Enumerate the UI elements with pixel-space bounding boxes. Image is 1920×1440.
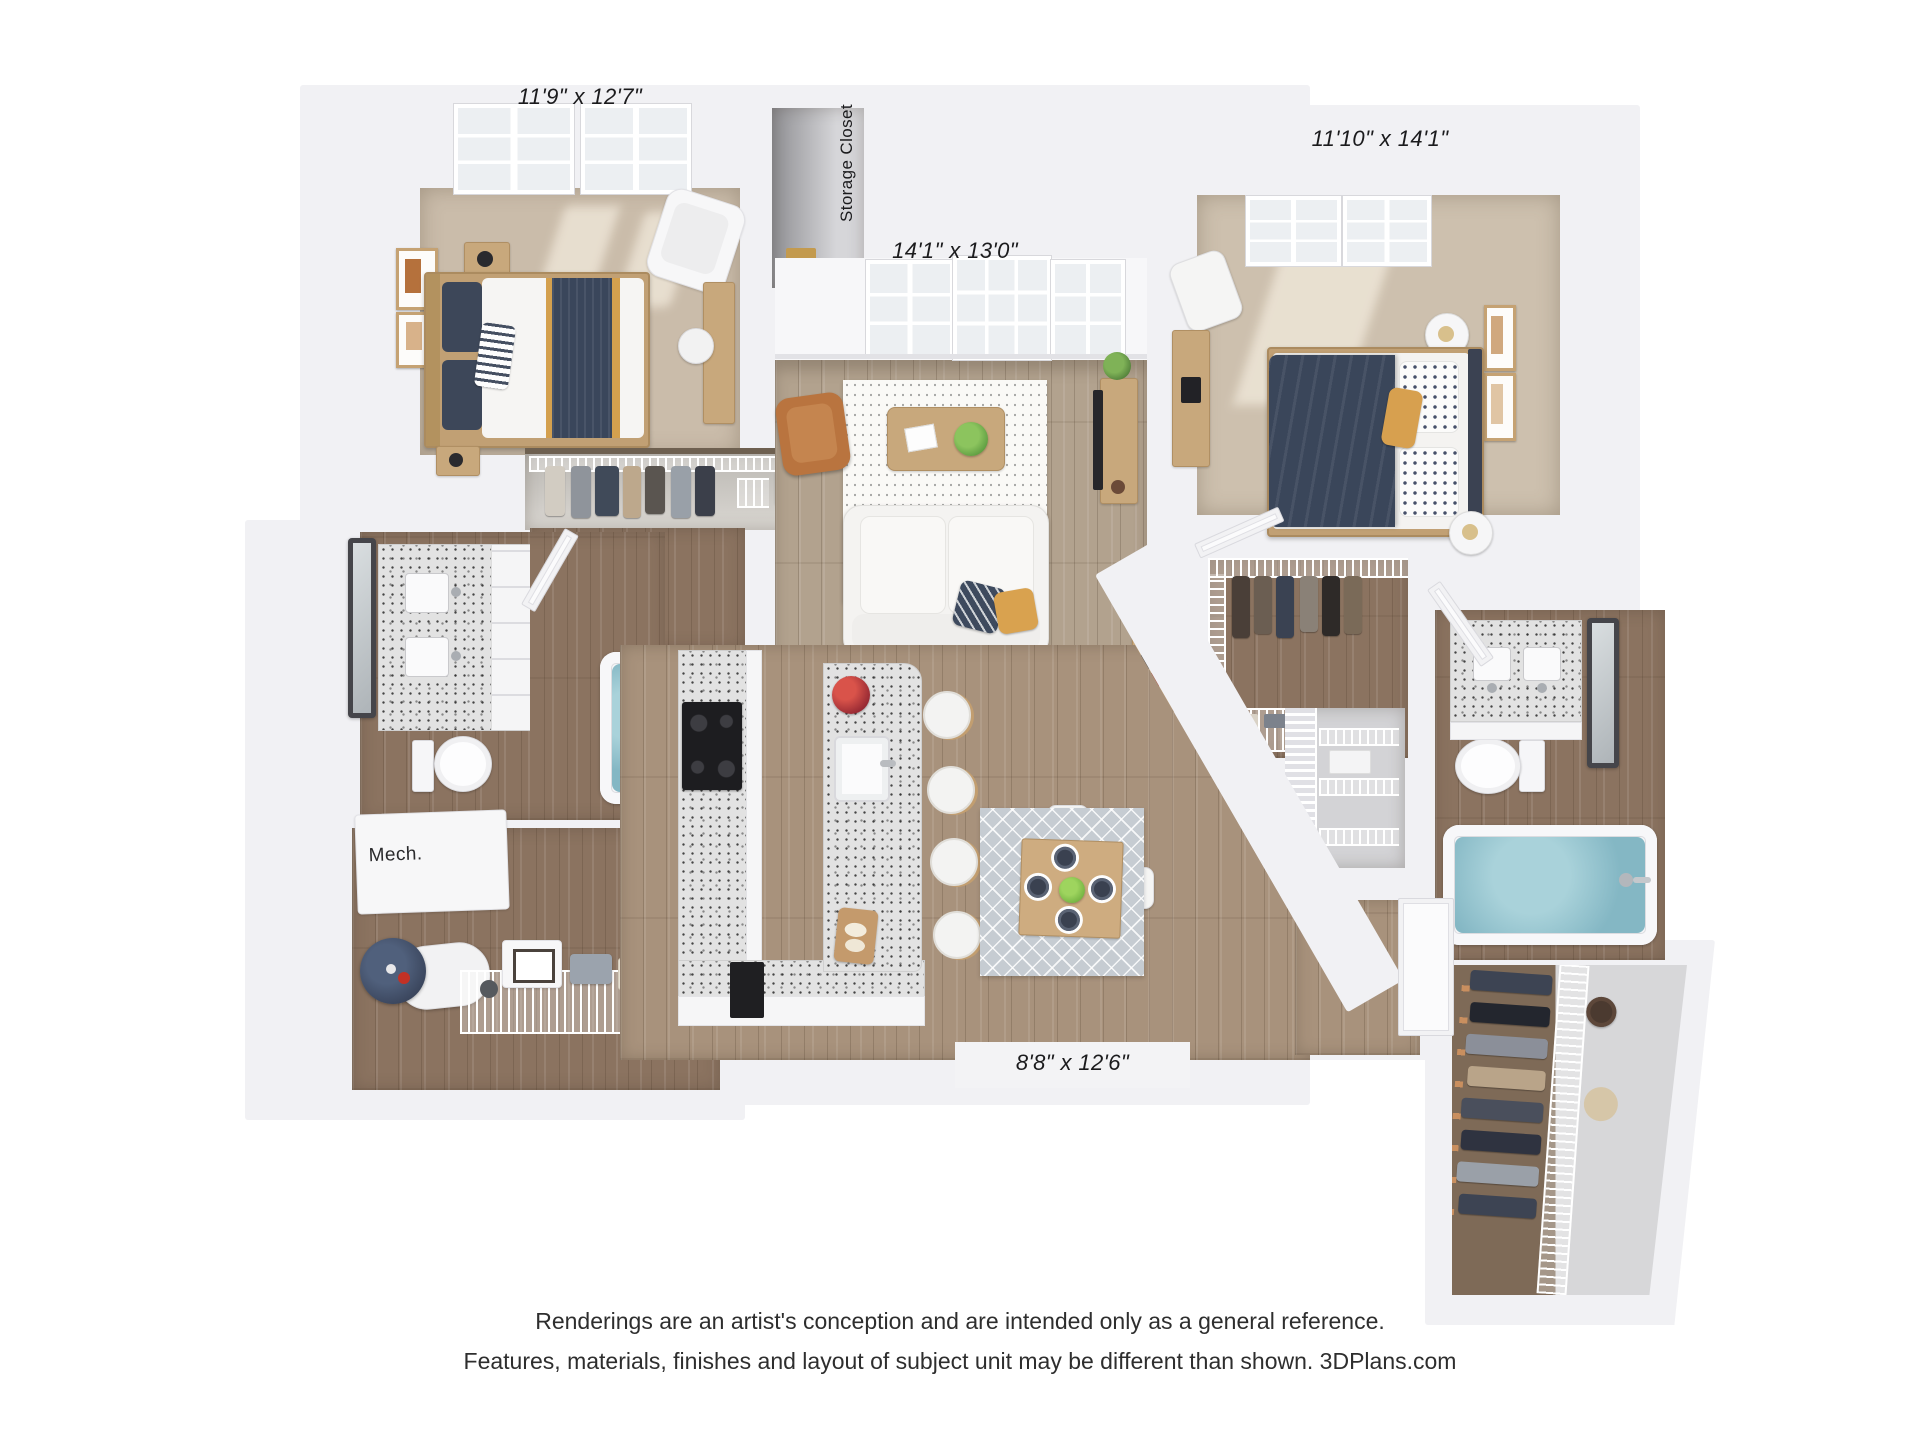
water-heater-valve <box>398 972 410 984</box>
disclaimer-line1: Renderings are an artist's conception an… <box>0 1308 1920 1335</box>
closet-wire-shelf <box>1208 558 1408 578</box>
linen-storage-box <box>1329 750 1371 774</box>
vanity-cabinet-front <box>491 545 530 730</box>
vanity-sink <box>1523 647 1561 681</box>
sofa-cushion <box>860 516 946 614</box>
vanity-faucet <box>1487 683 1497 693</box>
dining-place-setting <box>1091 878 1114 901</box>
bedroom2-window <box>1347 200 1427 262</box>
linen-wire-shelf <box>1319 778 1399 796</box>
hanging-garment <box>1232 576 1250 638</box>
hanging-garment <box>645 466 665 514</box>
sofa-pillow-mustard <box>993 587 1040 635</box>
hanging-garment <box>595 466 619 516</box>
mechanical-storage-bin <box>570 954 612 984</box>
hanging-garment <box>695 466 715 516</box>
living-french-door <box>957 260 1047 356</box>
hanging-garment <box>1465 1034 1548 1060</box>
desk-laptop <box>1181 377 1201 403</box>
kitchen-counter-left <box>678 650 748 972</box>
bedroom2-floor <box>1197 195 1560 515</box>
bedroom1-nightstand <box>436 446 480 476</box>
hanging-garment <box>1469 1002 1550 1028</box>
coffee-table-plant <box>954 422 988 456</box>
dining-place-setting <box>1054 846 1077 869</box>
hanging-garment <box>1461 1097 1544 1123</box>
hanging-garment <box>545 466 565 516</box>
mechanical-storage-box <box>502 940 562 988</box>
bathroom1-toilet-bowl <box>434 736 492 792</box>
bedroom2-bed <box>1267 347 1484 537</box>
bedroom2-wall-art <box>1484 305 1516 371</box>
kitchen-bar-stool <box>930 838 978 886</box>
disclaimer-line2: Features, materials, finishes and layout… <box>0 1348 1920 1375</box>
hanging-garment <box>1254 576 1272 634</box>
water-heater-top <box>360 938 426 1004</box>
bedroom1-lamp <box>477 251 493 267</box>
bedroom1-window <box>458 108 570 190</box>
bedroom1-dimensions-label: 11'9" x 12'7" <box>420 84 740 110</box>
hanging-garment <box>1467 1066 1546 1091</box>
linen-wire-shelf <box>1319 728 1399 746</box>
bedroom2-nightstand <box>1449 511 1493 555</box>
bathtub-water <box>1455 837 1645 933</box>
bed-pillow <box>1399 447 1459 517</box>
dining-place-setting <box>1058 909 1081 932</box>
hanging-garment <box>1322 576 1340 636</box>
coffee-table-book <box>904 424 938 453</box>
bathroom2-toilet-bowl <box>1455 738 1521 794</box>
walkin-storage-cylinder <box>1585 996 1617 1028</box>
bedroom1-desk-chair <box>678 328 714 364</box>
kitchen-bar-stool <box>933 911 981 959</box>
kitchen-fruit-bowl <box>832 676 870 714</box>
walkin-closet <box>1452 965 1687 1295</box>
living-window <box>1055 264 1121 354</box>
mechanical-label: Mech. <box>368 843 422 867</box>
living-plant <box>1103 352 1131 380</box>
bedroom2-desk <box>1172 330 1210 467</box>
bathroom1-floor <box>360 532 665 820</box>
vanity-faucet <box>1537 683 1547 693</box>
hanging-garment <box>1456 1161 1539 1187</box>
storage-closet-label: Storage Closet <box>837 88 859 238</box>
bathroom2-mirror <box>1587 618 1619 768</box>
bed-accent-stripe <box>612 278 620 438</box>
kitchen-cutting-board <box>833 907 878 965</box>
dining-centerpiece <box>1059 877 1086 904</box>
vanity-sink <box>405 573 449 613</box>
hanging-garment <box>1276 576 1294 638</box>
linen-wire-shelf <box>1319 828 1399 846</box>
walkin-hat-box <box>1583 1086 1619 1122</box>
mechanical-hvac-unit: Mech. <box>354 809 509 914</box>
dining-table <box>1018 838 1123 939</box>
bedroom1-bed <box>424 272 650 448</box>
hanging-garment <box>571 466 591 518</box>
bathroom2-floor <box>1435 610 1665 960</box>
closet-wire-basket <box>737 478 769 508</box>
bed-headboard <box>1468 349 1482 535</box>
living-vase <box>1111 480 1125 494</box>
living-dimensions-label: 14'1" x 13'0" <box>790 238 1120 264</box>
kitchen-stove-cooktop <box>682 702 742 790</box>
kitchen-oven-front <box>730 962 764 1018</box>
bedroom1-lamp <box>449 453 463 467</box>
bathroom1-vanity <box>378 544 530 731</box>
bathroom1-toilet-tank <box>412 740 434 792</box>
bathroom2-toilet-tank <box>1519 740 1545 792</box>
kitchen-cabinet-face <box>678 996 925 1026</box>
hanging-garment <box>1470 970 1553 996</box>
bathroom2-bathtub <box>1443 825 1657 945</box>
mechanical-fan <box>480 980 498 998</box>
bedroom2-dimensions-label: 11'10" x 14'1" <box>1225 126 1535 152</box>
bedroom1-window <box>585 108 687 190</box>
entry-door <box>1398 898 1454 1036</box>
kitchen-cabinet-face <box>746 650 762 972</box>
living-tv <box>1093 390 1103 490</box>
kitchen-bar-stool <box>923 691 971 739</box>
living-window <box>870 264 950 354</box>
vanity-faucet <box>451 651 461 661</box>
hanging-garment <box>671 466 691 518</box>
bed-headboard <box>426 274 440 446</box>
bathroom1-mirror <box>348 538 376 718</box>
bed-duvet-navy <box>1269 355 1395 527</box>
vanity-faucet <box>451 587 461 597</box>
kitchen-sink <box>834 736 890 802</box>
bedroom2-wall-art <box>1484 373 1516 441</box>
vanity-sink <box>405 637 449 677</box>
dining-dimensions-label: 8'8" x 12'6" <box>955 1050 1190 1076</box>
hanging-garment <box>1344 576 1362 634</box>
bed-pillow <box>442 282 482 352</box>
kitchen-faucet <box>880 760 896 767</box>
hanging-garment <box>1460 1129 1541 1155</box>
living-coffee-table <box>887 407 1005 471</box>
kitchen-bar-stool <box>927 766 975 814</box>
hanging-garment <box>1300 576 1318 632</box>
hanging-garment <box>623 466 641 518</box>
bedroom1-floor <box>420 188 740 455</box>
bathtub-faucet <box>1633 877 1651 883</box>
bathroom2-cabinet-face <box>1450 722 1582 740</box>
living-sofa <box>843 505 1049 657</box>
hanging-garment <box>1458 1193 1537 1218</box>
kitchen-island <box>823 663 922 972</box>
dining-place-setting <box>1027 875 1050 898</box>
bed-throw-blanket <box>552 278 612 438</box>
living-window-sill <box>775 354 1147 359</box>
bedroom2-window <box>1250 200 1337 262</box>
floorplan-canvas: Mech. <box>0 0 1920 1440</box>
living-leather-armchair <box>774 391 852 478</box>
bathtub-faucet <box>1619 873 1633 887</box>
